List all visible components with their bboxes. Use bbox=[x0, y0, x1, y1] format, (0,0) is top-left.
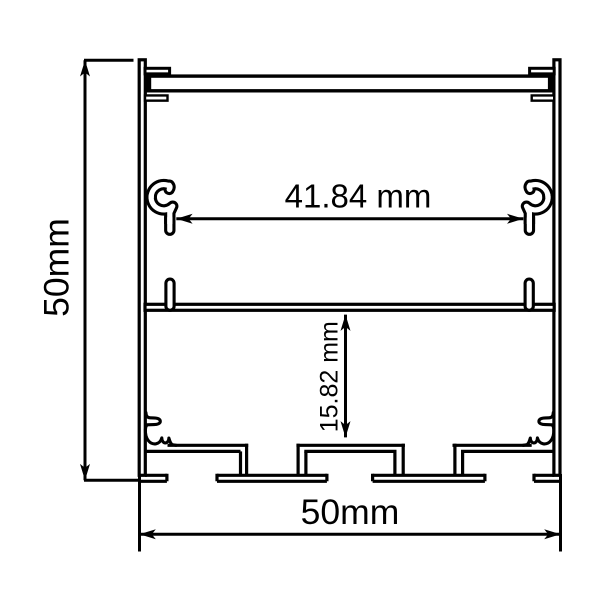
svg-text:50mm: 50mm bbox=[37, 218, 77, 317]
svg-text:50mm: 50mm bbox=[301, 492, 400, 532]
svg-text:41.84 mm: 41.84 mm bbox=[285, 178, 432, 215]
svg-text:15.82 mm: 15.82 mm bbox=[316, 321, 344, 432]
